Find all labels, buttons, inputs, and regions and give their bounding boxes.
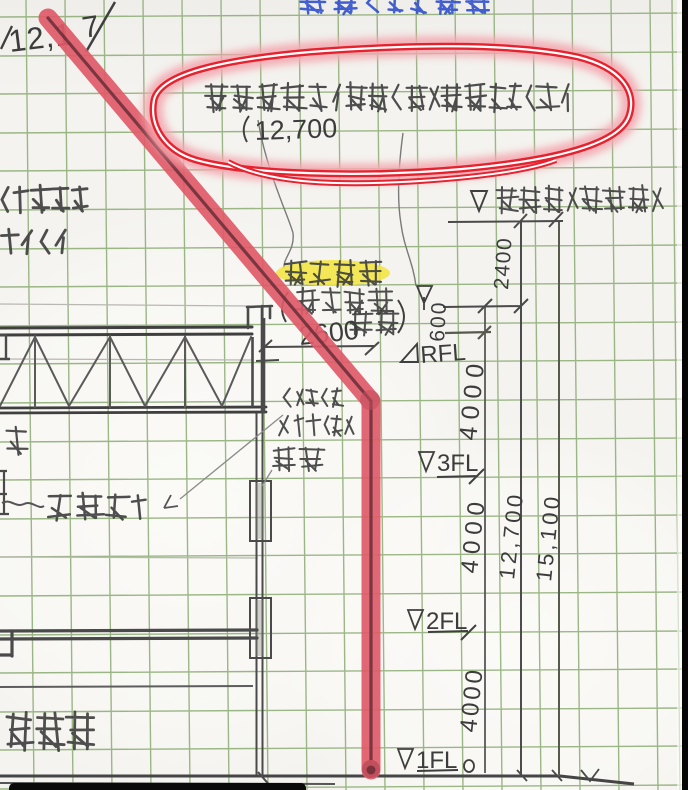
svg-text:2400: 2400 [490, 236, 517, 290]
svg-text:3FL: 3FL [437, 450, 478, 477]
svg-text:RFL: RFL [420, 339, 467, 369]
svg-text:600: 600 [426, 300, 451, 342]
svg-text:12,700: 12,700 [254, 113, 338, 146]
